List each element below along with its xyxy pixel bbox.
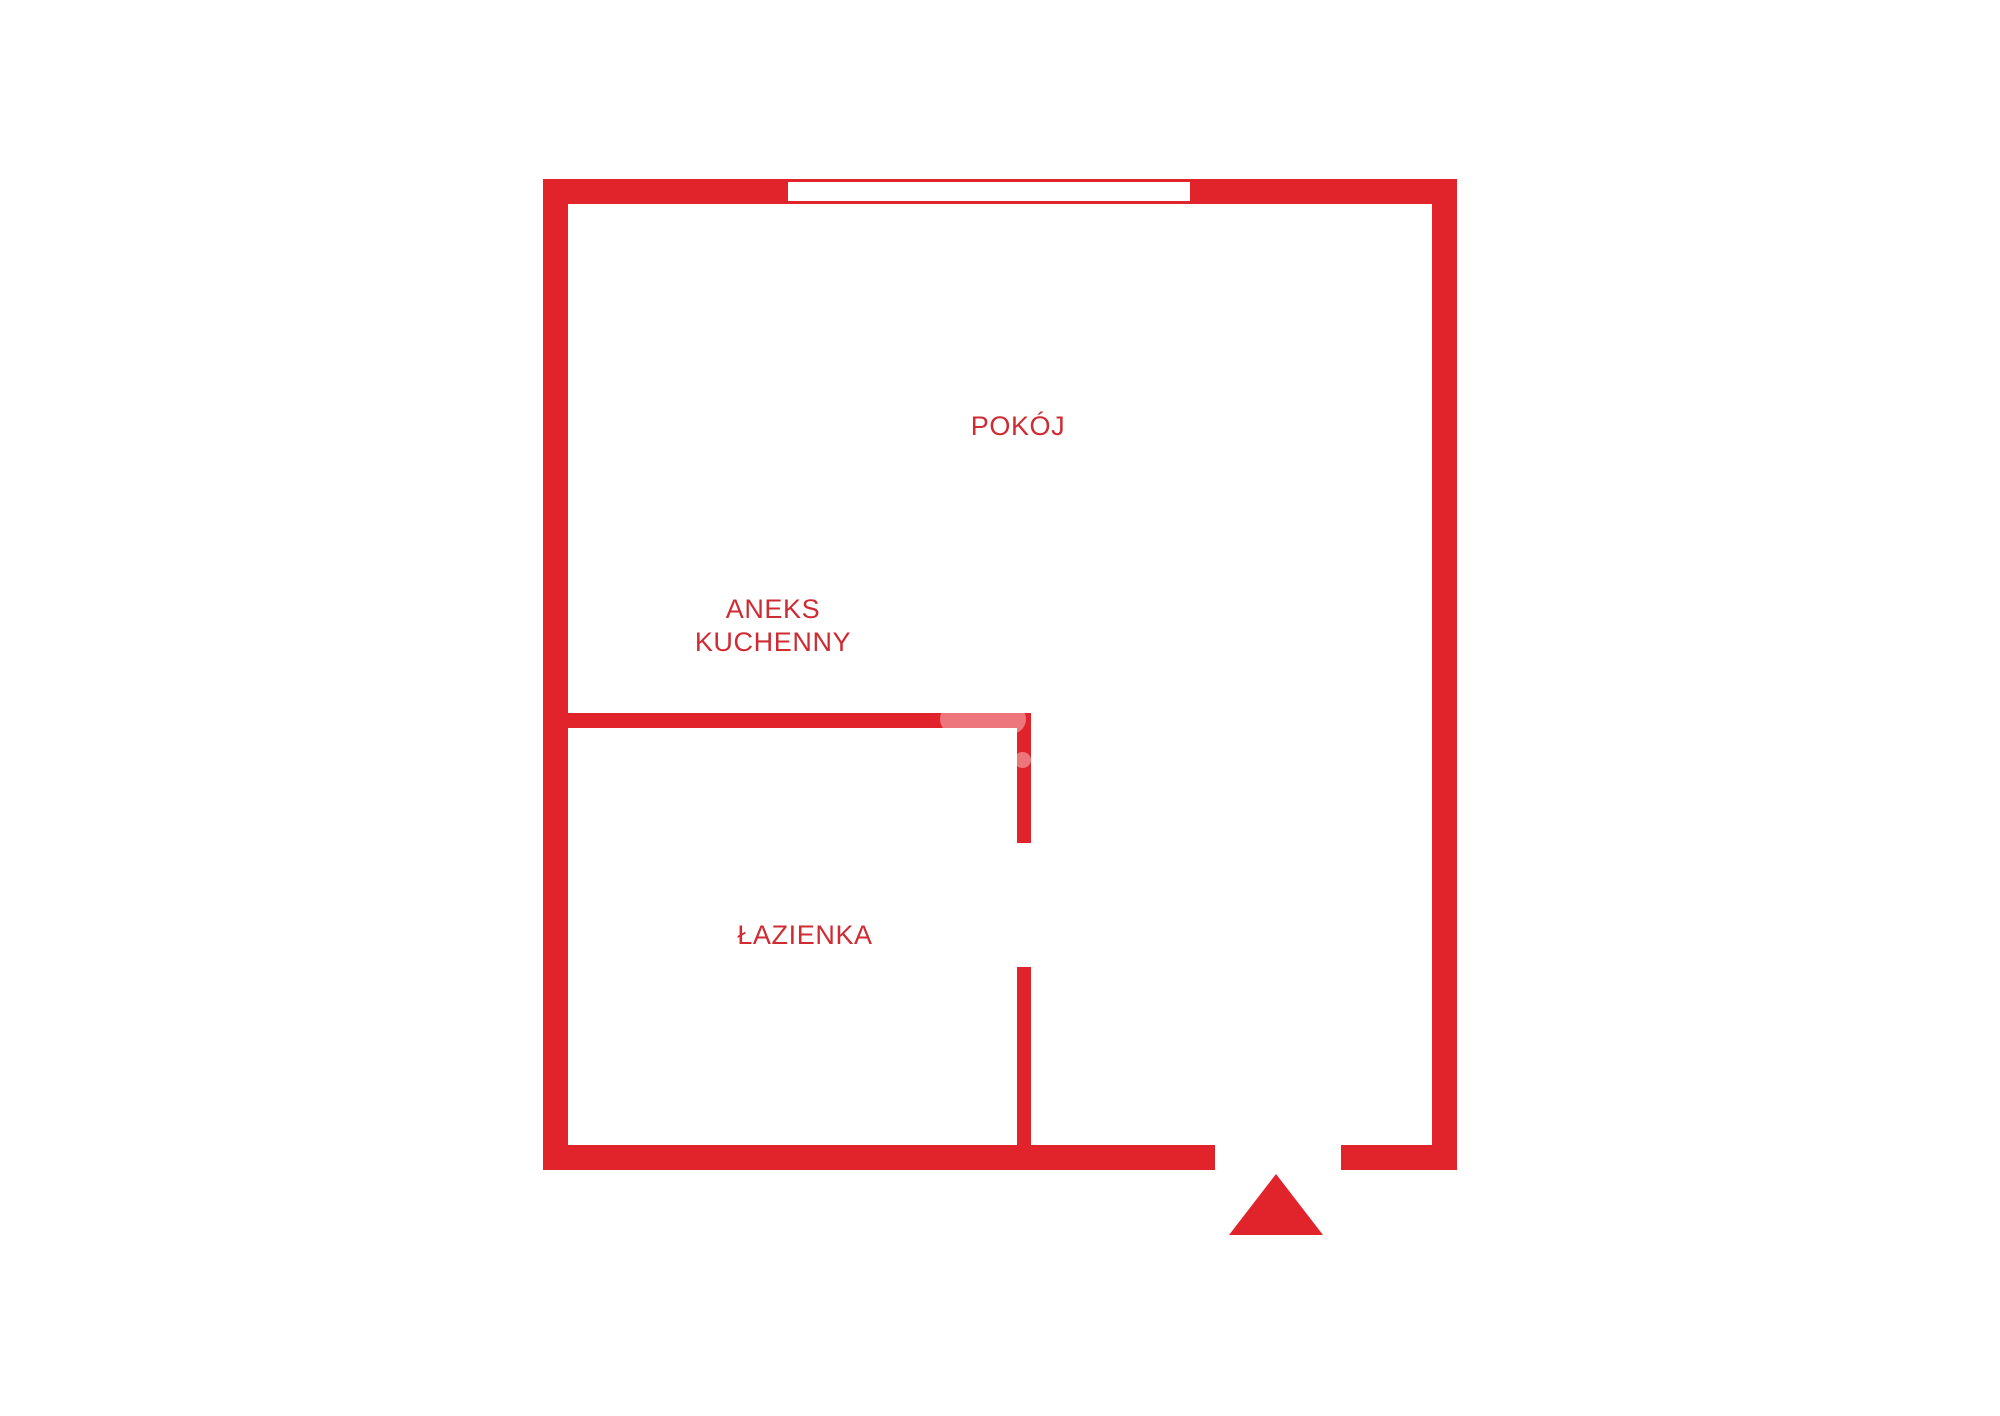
inner-wall-bathroom-door-upper bbox=[1017, 728, 1031, 843]
room-label-lazienka: ŁAZIENKA bbox=[655, 913, 955, 957]
inner-wall-bathroom-door-lower bbox=[1017, 967, 1031, 1145]
window-icon bbox=[788, 179, 1190, 204]
outer-wall-bottom-right-segment bbox=[1341, 1145, 1457, 1170]
outer-wall-left bbox=[543, 179, 568, 1170]
outer-wall-right bbox=[1432, 179, 1457, 1170]
room-label-aneks-kuchenny: ANEKS KUCHENNY bbox=[623, 593, 923, 659]
entrance-triangle-icon bbox=[1229, 1174, 1323, 1235]
watermark-artifact bbox=[940, 704, 1026, 734]
outer-wall-top-left-segment bbox=[543, 179, 788, 204]
room-label-pokoj: POKÓJ bbox=[868, 404, 1168, 448]
outer-wall-bottom-left-segment bbox=[543, 1145, 1215, 1170]
room-label-aneks-line1: ANEKS bbox=[623, 593, 923, 626]
room-label-aneks-line2: KUCHENNY bbox=[623, 626, 923, 659]
floor-plan-canvas: POKÓJ ANEKS KUCHENNY ŁAZIENKA bbox=[0, 0, 2000, 1416]
outer-wall-top-right-segment bbox=[1190, 179, 1457, 204]
watermark-artifact bbox=[1014, 752, 1031, 768]
